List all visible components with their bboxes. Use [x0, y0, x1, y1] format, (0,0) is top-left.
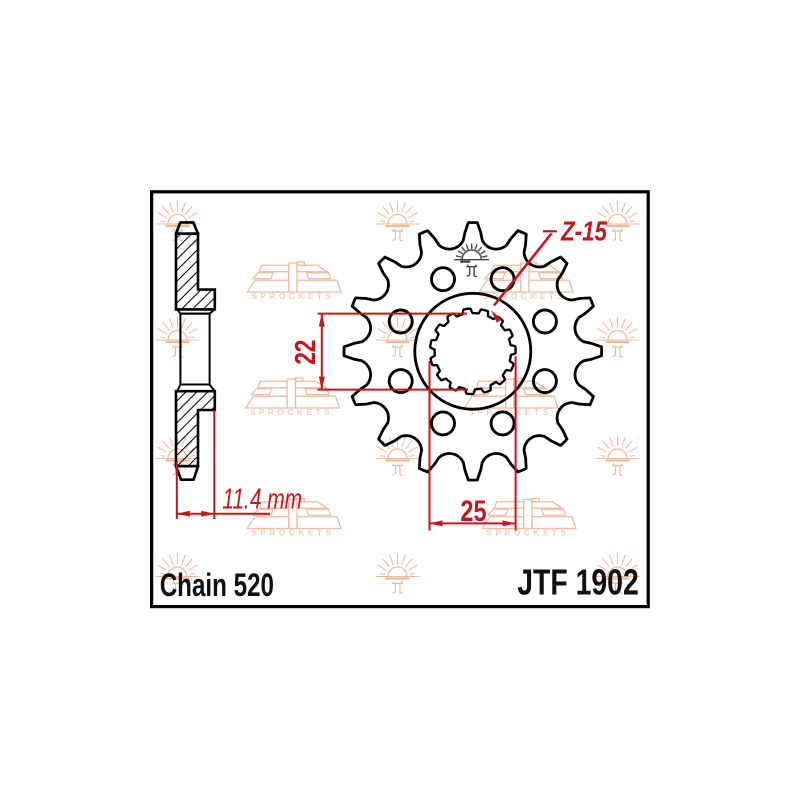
svg-text:Chain 520: Chain 520 — [160, 567, 274, 603]
svg-text:22: 22 — [290, 340, 322, 365]
svg-text:Z-15: Z-15 — [560, 215, 607, 246]
svg-text:JTF 1902: JTF 1902 — [517, 561, 639, 602]
svg-text:11.4 mm: 11.4 mm — [222, 484, 302, 516]
svg-text:25: 25 — [460, 495, 486, 528]
